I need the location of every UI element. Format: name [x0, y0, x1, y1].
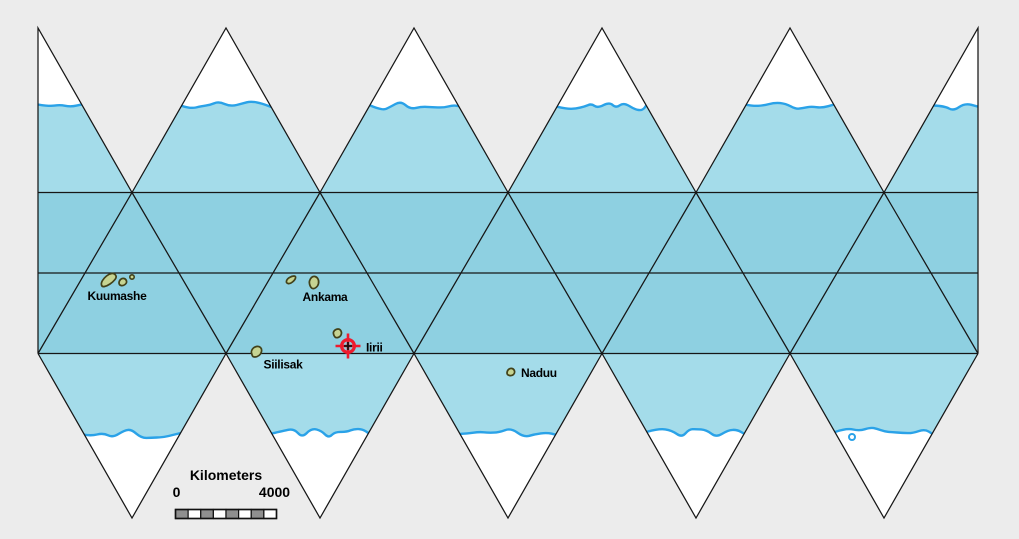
island-label-kuumashe: Kuumashe [88, 289, 148, 303]
island-kuumashe[interactable] [130, 275, 134, 279]
north-polar-cap [557, 28, 646, 110]
island-ankama[interactable] [309, 276, 318, 288]
ice-cap-fill [181, 28, 270, 108]
scale-bar-max-label: 4000 [259, 484, 290, 500]
island-label-ankama: Ankama [303, 290, 349, 304]
ice-cap-fill [271, 429, 368, 518]
ice-cap-fill [835, 428, 932, 518]
south-polar-cap [271, 429, 368, 518]
scale-bar-min-label: 0 [173, 484, 181, 500]
ice-cap-fill [83, 430, 180, 518]
island-iirii[interactable] [333, 329, 341, 338]
scale-bar: Kilometers04000 [173, 467, 291, 519]
scale-bar-segment [264, 510, 277, 519]
icosahedral-world-map[interactable]: KuumasheAnkamaSiilisakIiriiNaduu Kilomet… [0, 0, 1019, 539]
island-label-siilisak: Siilisak [264, 358, 304, 372]
south-polar-cap [83, 430, 180, 518]
south-polar-cap [459, 429, 556, 518]
ice-cap-fill [459, 429, 556, 518]
island-naduu[interactable] [507, 368, 515, 375]
north-polar-cap [369, 28, 458, 109]
ice-cap-fill [557, 28, 646, 110]
north-polar-cap [181, 28, 270, 108]
island-label-naduu: Naduu [521, 366, 557, 380]
scale-bar-segment [188, 510, 201, 519]
ice-cap-fill [369, 28, 458, 109]
scale-bar-segment [213, 510, 226, 519]
scale-bar-segment [201, 510, 214, 519]
world-map-stage: KuumasheAnkamaSiilisakIiriiNaduu Kilomet… [0, 0, 1019, 539]
north-polar-cap [745, 28, 834, 109]
scale-bar-segment [226, 510, 239, 519]
scale-bar-segment [251, 510, 264, 519]
polar-coastline [38, 104, 83, 106]
scale-bar-segment [176, 510, 189, 519]
south-polar-cap [835, 428, 932, 518]
south-polar-cap [647, 429, 744, 518]
scale-bar-title: Kilometers [190, 467, 263, 483]
island-kuumashe[interactable] [119, 278, 127, 285]
ice-cap-fill [647, 429, 744, 518]
island-siilisak[interactable] [251, 346, 261, 357]
scale-bar-segment [239, 510, 252, 519]
island-label-iirii: Iirii [366, 341, 383, 355]
ice-cap-fill [745, 28, 834, 109]
